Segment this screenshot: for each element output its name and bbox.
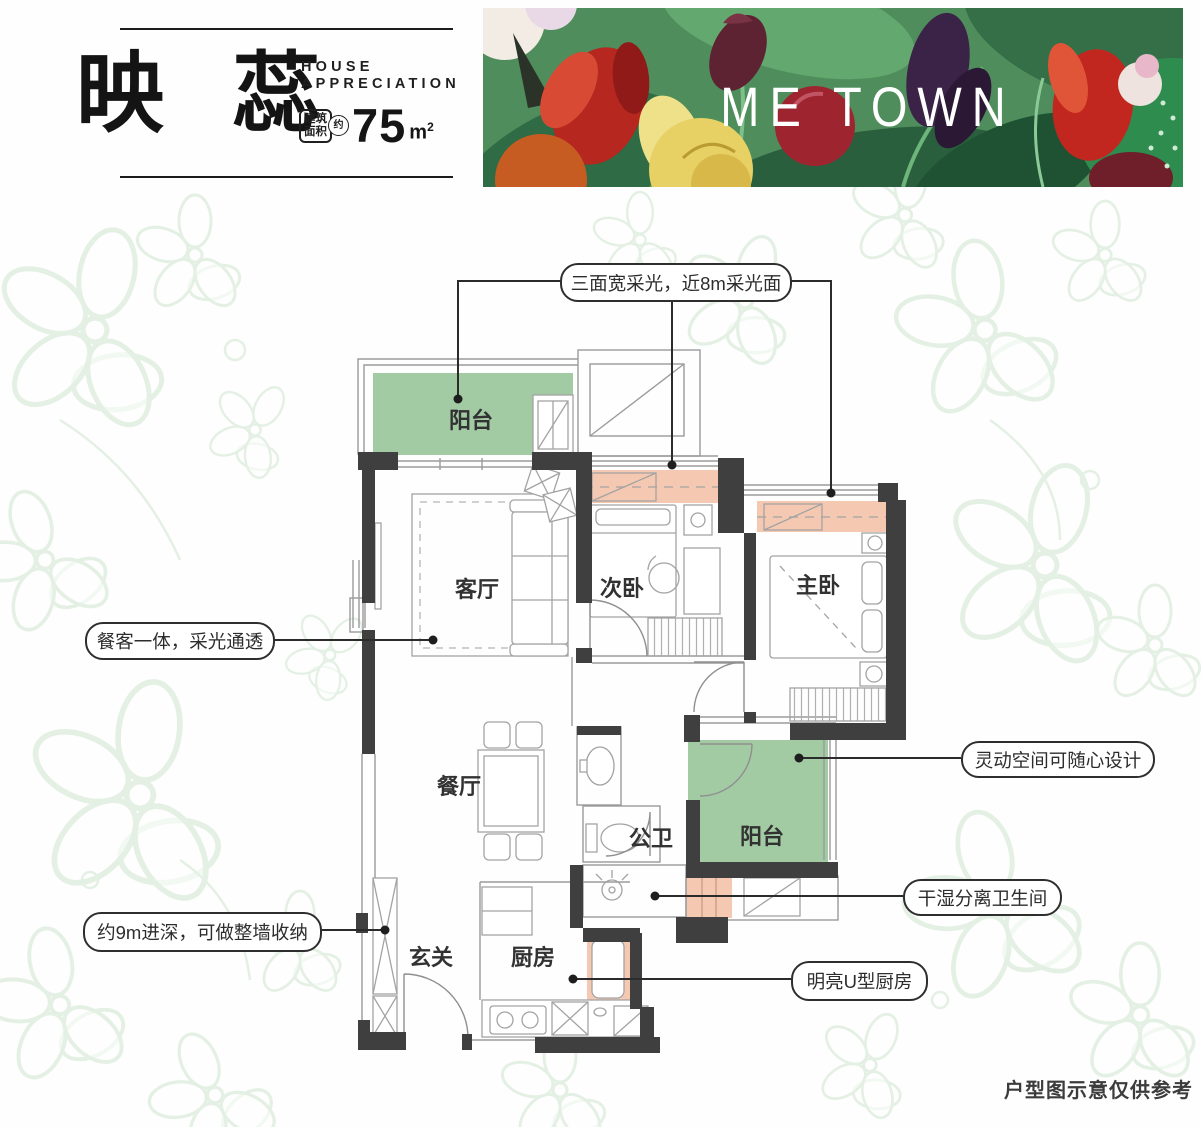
disclaimer-note: 户型图示意仅供参考 <box>1004 1074 1193 1103</box>
room-label-living: 客厅 <box>455 577 499 602</box>
floorplan: 阳台 客厅 次卧 主卧 餐厅 公卫 阳台 玄关 厨房 <box>0 0 1201 1127</box>
room-label-bedroom2: 次卧 <box>600 576 644 601</box>
callout-dining-living: 餐客一体，采光通透 <box>85 622 275 660</box>
room-label-foyer: 玄关 <box>409 945 453 970</box>
callout-kitchen-u: 明亮U型厨房 <box>791 961 928 1001</box>
room-label-master: 主卧 <box>796 573 840 598</box>
floorplan-page: { "header": { "title": "映 蕊", "subtitle_… <box>0 0 1201 1127</box>
callout-flex: 灵动空间可随心设计 <box>961 741 1155 778</box>
callout-drywet: 干湿分离卫生间 <box>903 879 1062 916</box>
room-label-bath: 公卫 <box>629 826 673 851</box>
callout-storage: 约9m进深，可做整墙收纳 <box>83 912 322 952</box>
callout-light: 三面宽采光，近8m采光面 <box>560 263 792 302</box>
room-label-balcony-right: 阳台 <box>740 824 784 849</box>
room-label-dining: 餐厅 <box>437 774 481 799</box>
room-label-kitchen: 厨房 <box>511 945 555 970</box>
room-label-balcony-top: 阳台 <box>449 408 493 433</box>
